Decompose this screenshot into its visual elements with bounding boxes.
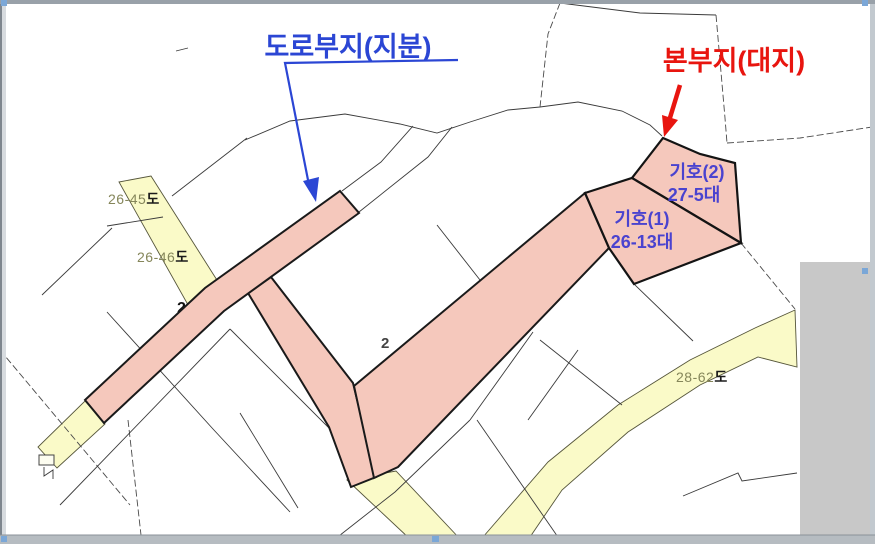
left-frame-edge xyxy=(0,4,2,544)
lot-2645-suffix: 도 xyxy=(146,191,159,207)
top-frame-bar xyxy=(0,0,875,4)
lot-label-2646: 26-46도 xyxy=(137,249,189,265)
canvas-gray-area-right xyxy=(800,262,875,536)
lot-label-2862: 28-62도 xyxy=(676,369,728,385)
left-frame-strip xyxy=(2,4,6,535)
giho1-name-label: 기호(1) xyxy=(614,209,669,229)
handle-right-middle[interactable] xyxy=(862,268,868,274)
partial-label-2-center: 2 xyxy=(381,335,389,352)
lot-2862-suffix: 도 xyxy=(714,369,727,385)
lot-label-2645: 26-45도 xyxy=(108,191,160,207)
right-frame-strip xyxy=(870,0,875,544)
editor-canvas: 2 2 도 26-45도 26-46도 28-62도 기호(2) 27-5대 기… xyxy=(0,0,875,544)
main-parcel-annotation-text: 본부지(대지) xyxy=(663,46,805,76)
handle-top-left[interactable] xyxy=(1,0,7,6)
lot-2646-suffix: 도 xyxy=(175,249,188,265)
map-background xyxy=(0,0,875,544)
giho1-lot-label: 26-13대 xyxy=(611,232,674,252)
lot-2862-number: 28-62 xyxy=(676,369,714,385)
handle-bottom-left[interactable] xyxy=(1,536,7,542)
handle-bottom-middle[interactable] xyxy=(432,536,439,542)
handle-top-right[interactable] xyxy=(862,0,868,6)
giho2-lot-label: 27-5대 xyxy=(668,185,721,205)
lot-2645-number: 26-45 xyxy=(108,191,146,207)
lot-2646-number: 26-46 xyxy=(137,249,175,265)
cadastral-map-image[interactable]: 2 2 도 26-45도 26-46도 28-62도 기호(2) 27-5대 기… xyxy=(0,0,875,544)
giho2-name-label: 기호(2) xyxy=(669,162,724,182)
road-share-annotation-text: 도로부지(지분) xyxy=(264,32,431,62)
